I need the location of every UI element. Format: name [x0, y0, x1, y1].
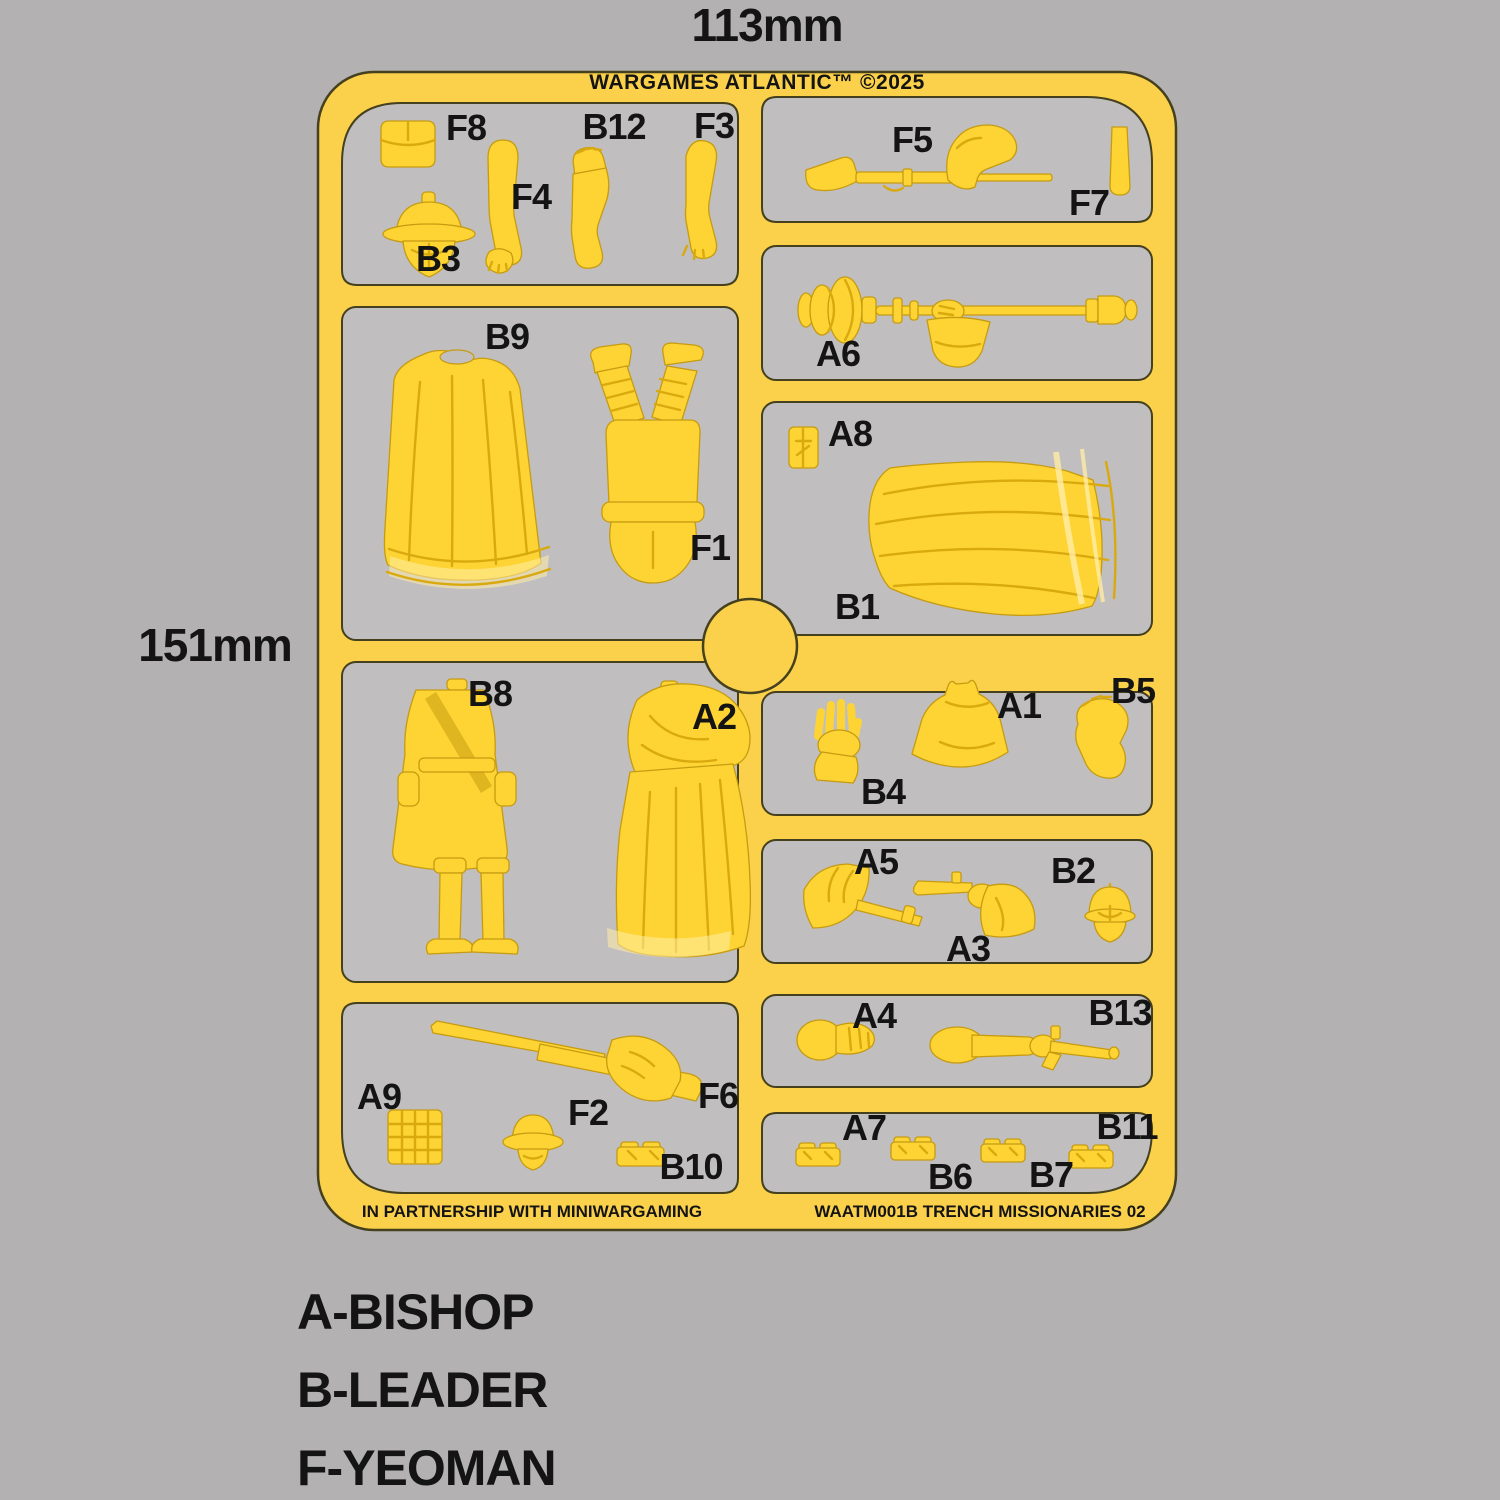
part-label-f6: F6 — [698, 1075, 738, 1117]
legend-item-yeoman: F-YEOMAN — [297, 1439, 556, 1497]
part-label-b8: B8 — [468, 673, 512, 715]
footer-partnership: IN PARTNERSHIP WITH MINIWARGAMING — [362, 1202, 702, 1222]
legend-item-bishop: A-BISHOP — [297, 1283, 533, 1341]
part-label-f2: F2 — [568, 1092, 608, 1134]
part-label-b5: B5 — [1111, 670, 1155, 712]
legend-item-leader: B-LEADER — [297, 1361, 547, 1419]
part-label-f4: F4 — [511, 176, 551, 218]
part-label-f1: F1 — [690, 527, 730, 569]
part-label-b9: B9 — [485, 316, 529, 358]
part-label-a5: A5 — [854, 841, 898, 883]
part-label-a9: A9 — [357, 1076, 401, 1118]
part-label-b10: B10 — [659, 1146, 722, 1188]
sprue-product-photo: 113mm 151mm WARGAMES ATLANTIC™ ©2025 IN … — [0, 0, 1500, 1500]
part-label-b13: B13 — [1088, 992, 1151, 1034]
part-label-a2: A2 — [692, 696, 736, 738]
part-label-b7: B7 — [1029, 1154, 1073, 1196]
part-label-b3: B3 — [416, 238, 460, 280]
part-label-a4: A4 — [852, 995, 896, 1037]
part-label-a3: A3 — [946, 928, 990, 970]
sprue-title: WARGAMES ATLANTIC™ ©2025 — [589, 71, 925, 95]
sprue-graphic — [0, 0, 1500, 1500]
part-label-a8: A8 — [828, 413, 872, 455]
part-label-b2: B2 — [1051, 850, 1095, 892]
part-label-b1: B1 — [835, 586, 879, 628]
dimension-width-label: 113mm — [691, 0, 842, 52]
part-label-b4: B4 — [861, 771, 905, 813]
part-a8-small-pouch — [789, 427, 818, 468]
part-label-f3: F3 — [694, 105, 734, 147]
dimension-height-label: 151mm — [138, 618, 292, 672]
part-label-f7: F7 — [1069, 182, 1109, 224]
part-label-a7: A7 — [842, 1107, 886, 1149]
part-label-b12: B12 — [582, 106, 645, 148]
part-label-a6: A6 — [816, 333, 860, 375]
part-label-f8: F8 — [446, 107, 486, 149]
part-f8-belt-pouch — [381, 121, 435, 167]
part-label-f5: F5 — [892, 119, 932, 161]
part-b4-open-hand-arm — [814, 703, 860, 783]
part-label-b11: B11 — [1096, 1106, 1157, 1148]
part-label-b6: B6 — [928, 1156, 972, 1198]
footer-product-code: WAATM001B TRENCH MISSIONARIES 02 — [814, 1202, 1145, 1222]
part-a9-ammo-grid — [388, 1110, 442, 1164]
part-f7-scabbard-strip — [1110, 127, 1130, 195]
part-label-a1: A1 — [997, 685, 1041, 727]
sprue-hub — [703, 599, 797, 693]
